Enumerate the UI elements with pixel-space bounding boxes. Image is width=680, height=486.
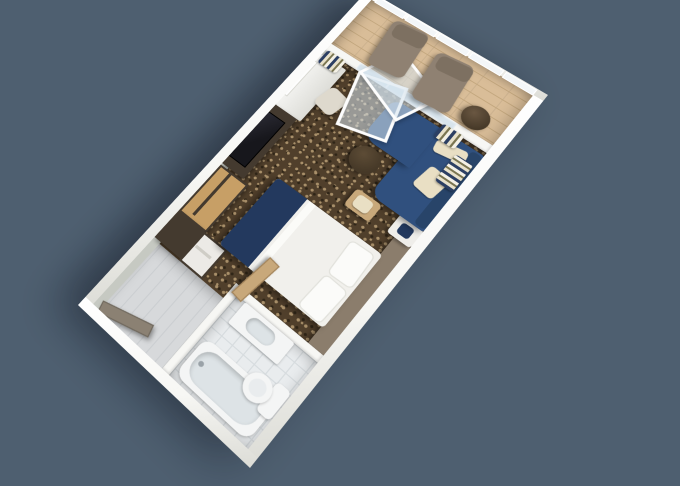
- stateroom-floorplan: [78, 0, 548, 468]
- stateroom-render-canvas: [0, 0, 680, 486]
